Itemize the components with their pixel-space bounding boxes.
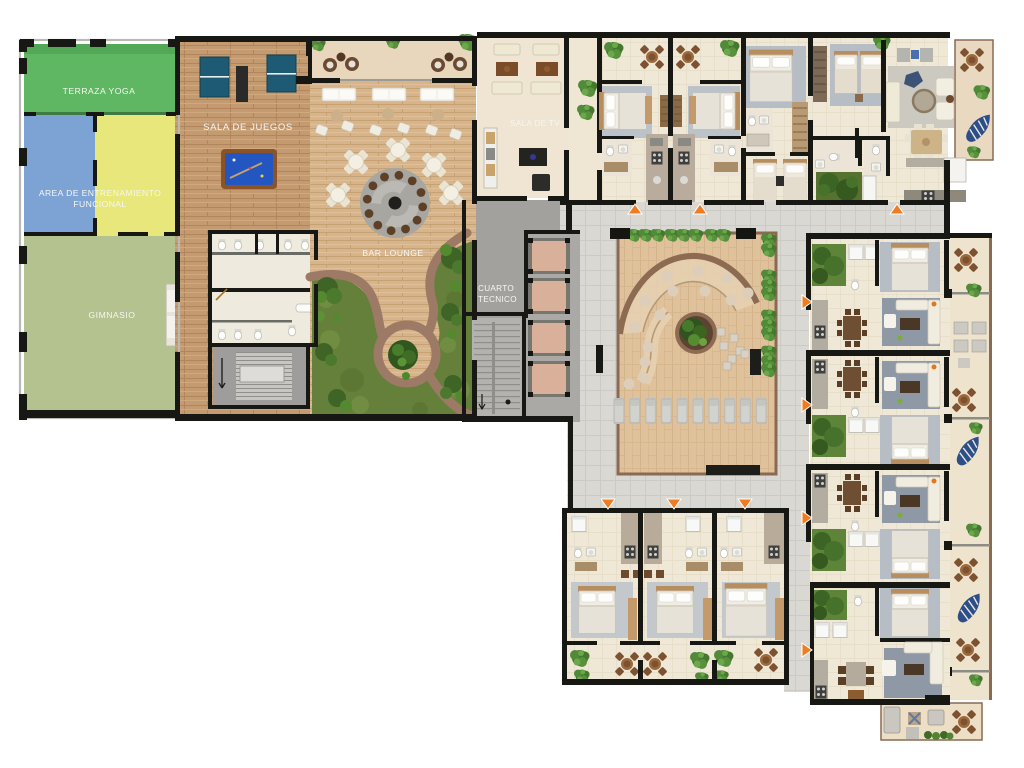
- svg-text:AREA DE ENTRENAMIENTO: AREA DE ENTRENAMIENTO: [39, 188, 161, 198]
- svg-text:SALA DE TV: SALA DE TV: [510, 119, 560, 128]
- svg-text:TECNICO: TECNICO: [478, 295, 517, 304]
- svg-text:TERRAZA YOGA: TERRAZA YOGA: [63, 86, 136, 96]
- svg-text:FUNCIONAL: FUNCIONAL: [73, 199, 126, 209]
- svg-text:BAR LOUNGE: BAR LOUNGE: [362, 248, 423, 258]
- svg-text:SALA DE JUEGOS: SALA DE JUEGOS: [203, 122, 293, 133]
- svg-text:GIMNASIO: GIMNASIO: [89, 310, 136, 320]
- svg-text:CUARTO: CUARTO: [478, 284, 514, 293]
